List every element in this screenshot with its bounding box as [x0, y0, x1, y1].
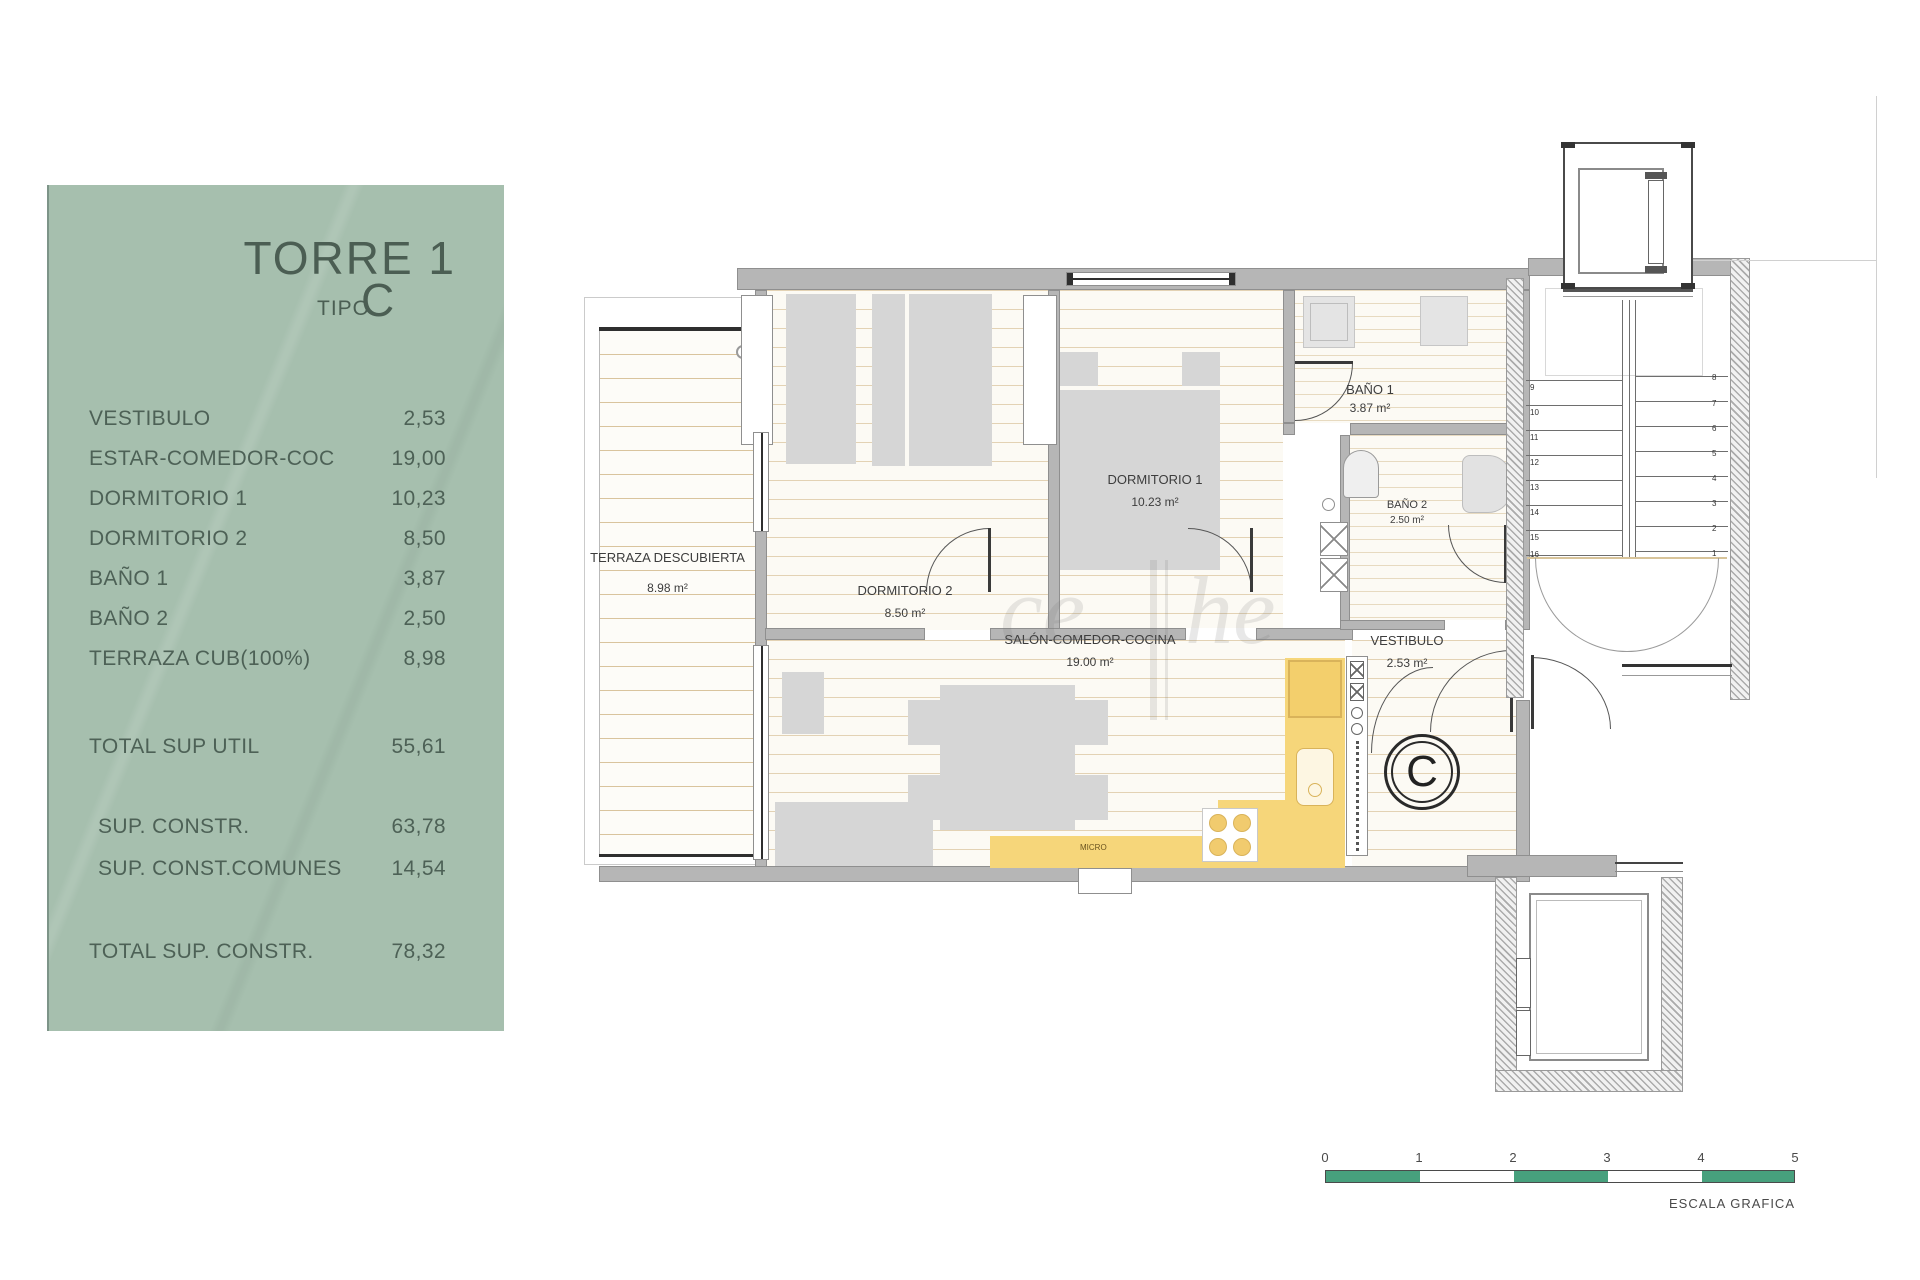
scale-tick: 3: [1603, 1150, 1610, 1165]
row-value: 63,78: [391, 815, 446, 855]
row-label: VESTIBULO: [89, 407, 210, 447]
wall-corridor-1: [765, 628, 925, 640]
closet-left: [741, 295, 773, 445]
panel-row: VESTIBULO 2,53: [89, 407, 446, 447]
shaft-wall-right: [1661, 877, 1683, 1092]
row-value: 2,50: [404, 607, 446, 647]
step-number: 10: [1530, 409, 1539, 417]
step-number: 2: [1712, 525, 1716, 533]
chair: [1074, 775, 1108, 820]
sink: [1322, 498, 1335, 511]
step-number: 9: [1530, 384, 1534, 392]
step-number: 8: [1712, 374, 1716, 382]
panel-row: BAÑO 1 3,87: [89, 567, 446, 607]
nightstand: [1182, 352, 1220, 386]
row-label: SUP. CONST.COMUNES: [98, 857, 342, 897]
panel-row: DORMITORIO 2 8,50: [89, 527, 446, 567]
panel-row: TERRAZA CUB(100%) 8,98: [89, 647, 446, 687]
window-salon: [753, 645, 769, 860]
row-value: 55,61: [391, 735, 446, 775]
row-label: DORMITORIO 1: [89, 487, 247, 527]
wall-dorm1-bano1: [1283, 290, 1295, 423]
panel-title: TORRE 1: [243, 231, 456, 285]
summary-panel: TORRE 1 TIPO C VESTIBULO 2,53 ESTAR-COME…: [47, 185, 504, 1031]
shower: [1303, 296, 1355, 348]
scale-segment: [1514, 1171, 1608, 1182]
micro-label: MICRO: [1080, 843, 1160, 852]
panel-row: DORMITORIO 1 10,23: [89, 487, 446, 527]
step-number: 15: [1530, 534, 1539, 542]
scale-tick: 1: [1415, 1150, 1422, 1165]
room-label-dormitorio2: DORMITORIO 2 8.50 m²: [830, 583, 980, 621]
wall-right-lower: [1516, 700, 1530, 868]
nightstand: [1060, 352, 1098, 386]
window-bottom: [1078, 868, 1132, 894]
row-value: 2,53: [404, 407, 446, 447]
row-label: TOTAL SUP. CONSTR.: [89, 940, 314, 980]
watermark-bar: [1165, 560, 1168, 720]
row-value: 10,23: [391, 487, 446, 527]
kitchen-sink: [1296, 748, 1334, 806]
room-area: 10.23 m²: [1080, 495, 1230, 511]
terrace-top-edge: [599, 327, 757, 331]
scale-tick: 4: [1697, 1150, 1704, 1165]
room-area: 2.50 m²: [1362, 514, 1452, 527]
unit-marker: C: [1384, 734, 1460, 810]
stair-divider: [1622, 300, 1636, 559]
window-dorm1: [1066, 272, 1236, 286]
window-end-cap: [1229, 273, 1235, 285]
window-glass-line: [761, 433, 763, 531]
room-label-bano1: BAÑO 1 3.87 m²: [1315, 382, 1425, 416]
room-name: DORMITORIO 1: [1107, 472, 1202, 487]
row-value: 14,54: [391, 857, 446, 897]
scale-tick: 2: [1509, 1150, 1516, 1165]
bed-split: [905, 294, 909, 466]
core-door-lines: [1622, 664, 1732, 676]
room-area: 8.50 m²: [830, 606, 980, 622]
dotted-symbol: [1356, 741, 1359, 851]
row-label: DORMITORIO 2: [89, 527, 247, 567]
stair-flight-left: [1526, 380, 1622, 559]
step-number: 5: [1712, 450, 1716, 458]
scale-segment: [1702, 1171, 1794, 1182]
row-value: 19,00: [391, 447, 446, 487]
watermark: ce he: [1000, 545, 1400, 745]
window-dorm2: [753, 432, 769, 532]
elevator-mechanism: [1648, 180, 1664, 264]
room-label-terraza: TERRAZA DESCUBIERTA 8.98 m²: [590, 550, 745, 596]
row-label: BAÑO 2: [89, 607, 168, 647]
scale-tick: 5: [1791, 1150, 1798, 1165]
burner: [1209, 814, 1227, 832]
row-value: 3,87: [404, 567, 446, 607]
room-name: TERRAZA DESCUBIERTA: [590, 550, 745, 565]
scale-segment: [1420, 1171, 1514, 1182]
toilet: [1343, 450, 1379, 498]
tipo-value: C: [361, 273, 394, 327]
watermark-bar: [1150, 560, 1157, 720]
mech-cap: [1645, 266, 1667, 273]
room-name: BAÑO 2: [1387, 499, 1427, 511]
step-number: 6: [1712, 425, 1716, 433]
chair: [908, 700, 942, 745]
landing-bottom-wall: [1467, 855, 1617, 877]
row-label: SUP. CONSTR.: [98, 815, 249, 855]
step-number: 4: [1712, 475, 1716, 483]
sideboard: [782, 672, 824, 734]
step-number: 12: [1530, 459, 1539, 467]
car-door-detail: [1516, 958, 1531, 1008]
panel-row: ESTAR-COMEDOR-COC 19,00: [89, 447, 446, 487]
elevator-threshold-line: [1563, 296, 1693, 297]
window-glass-line: [761, 646, 763, 859]
burner: [1233, 838, 1251, 856]
bed: [872, 294, 992, 466]
corner-tick: [1681, 142, 1695, 148]
wall-stub: [1283, 423, 1295, 435]
scale-bar: [1325, 1170, 1795, 1183]
step-number: 14: [1530, 509, 1539, 517]
scale-segment: [1326, 1171, 1420, 1182]
room-label-bano2: BAÑO 2 2.50 m²: [1362, 498, 1452, 527]
terrace-bottom-edge: [599, 854, 757, 857]
panel-total-row: TOTAL SUP. CONSTR. 78,32: [89, 940, 446, 980]
closet-mid: [1023, 295, 1057, 445]
scale-tick: 0: [1321, 1150, 1328, 1165]
door-leaf: [1531, 655, 1534, 729]
core-left-wall: [1506, 278, 1524, 698]
boundary-line-v: [1876, 96, 1877, 478]
shower-tray: [1310, 303, 1348, 341]
vanity: [1462, 455, 1512, 513]
room-label-dormitorio1: DORMITORIO 1 10.23 m²: [1080, 472, 1230, 510]
elevator-top: [1563, 142, 1693, 289]
wardrobe: [786, 294, 856, 464]
window-glass-line: [1067, 278, 1235, 280]
watermark-letters-left: ce: [1000, 555, 1085, 666]
burner: [1233, 814, 1251, 832]
panel-total-row: TOTAL SUP UTIL 55,61: [89, 735, 446, 775]
step-number: 16: [1530, 551, 1539, 559]
room-name: BAÑO 1: [1346, 382, 1394, 397]
door-arc-landing: [1531, 657, 1611, 729]
row-value: 8,50: [404, 527, 446, 567]
unit-marker-letter: C: [1391, 741, 1453, 803]
step-number: 1: [1712, 550, 1716, 558]
shaft-wall-left: [1495, 877, 1517, 1092]
burner: [1209, 838, 1227, 856]
sofa: [775, 802, 933, 866]
row-label: ESTAR-COMEDOR-COC: [89, 447, 335, 487]
room-name: DORMITORIO 2: [857, 583, 952, 598]
hob: [1202, 808, 1258, 862]
stair-arrival-arc: [1535, 558, 1719, 652]
step-number: 11: [1530, 434, 1538, 442]
core-right-wall: [1730, 258, 1750, 700]
panel-row: BAÑO 2 2,50: [89, 607, 446, 647]
panel-total-row: SUP. CONSTR. 63,78: [89, 815, 446, 855]
wall-bano1-bottom: [1350, 423, 1516, 435]
door-leaf: [988, 528, 991, 592]
step-number: 13: [1530, 484, 1539, 492]
shaft-wall-bottom: [1495, 1070, 1683, 1092]
elevator-threshold: [1563, 289, 1693, 292]
car-door-detail: [1516, 1010, 1531, 1056]
row-label: TOTAL SUP UTIL: [89, 735, 260, 775]
boundary-line-h: [1693, 260, 1877, 261]
step-number: 7: [1712, 400, 1716, 408]
corner-tick: [1561, 142, 1575, 148]
row-label: BAÑO 1: [89, 567, 168, 607]
sink-basin: [1308, 783, 1322, 797]
elevator-door-lines: [1615, 862, 1683, 872]
room-area: 3.87 m²: [1315, 401, 1425, 417]
row-label: TERRAZA CUB(100%): [89, 647, 311, 687]
elevator-bottom-inner: [1536, 900, 1642, 1054]
room-area: 8.98 m²: [590, 581, 745, 597]
watermark-letters-right: he: [1185, 555, 1276, 666]
mech-cap: [1645, 172, 1667, 179]
window-end-cap: [1067, 273, 1073, 285]
door-leaf: [1295, 361, 1353, 364]
wall-bottom: [599, 866, 1530, 882]
scale-segment: [1608, 1171, 1702, 1182]
row-value: 8,98: [404, 647, 446, 687]
scale-caption: ESCALA GRAFICA: [1625, 1196, 1795, 1211]
row-value: 78,32: [391, 940, 446, 980]
bathtub: [1420, 296, 1468, 346]
panel-total-row: SUP. CONST.COMUNES 14,54: [89, 857, 446, 897]
step-number: 3: [1712, 500, 1716, 508]
